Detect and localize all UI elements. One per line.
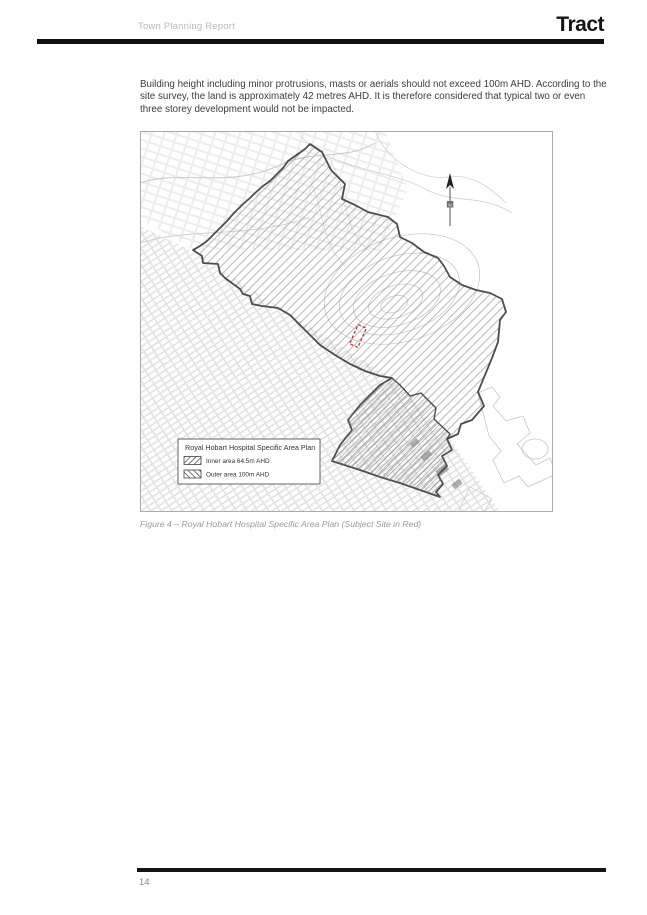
figure-caption: Figure 4 – Royal Hobart Hospital Specifi… [140,519,421,529]
legend-label-inner: Inner area 64.5m AHD [206,458,270,465]
map-svg: N Royal Hobart Hospital Specific Area Pl… [140,131,553,512]
body-paragraph: Building height including minor protrusi… [140,79,610,116]
page-number: 14 [139,877,150,888]
legend-swatch-inner [184,457,201,465]
figure-map: N Royal Hobart Hospital Specific Area Pl… [140,131,553,512]
legend-swatch-outer [184,470,201,478]
document-page: Town Planning Report Tract Building heig… [0,0,647,915]
brand-logo: Tract [556,13,604,37]
map-legend: Royal Hobart Hospital Specific Area Plan… [178,439,320,484]
legend-label-outer: Outer area 100m AHD [206,472,270,479]
report-title: Town Planning Report [138,21,235,32]
north-arrow-label: N [448,202,451,207]
header-rule [37,39,604,44]
legend-title: Royal Hobart Hospital Specific Area Plan [185,443,315,452]
footer-rule [137,868,606,872]
north-arrow: N [446,173,454,226]
